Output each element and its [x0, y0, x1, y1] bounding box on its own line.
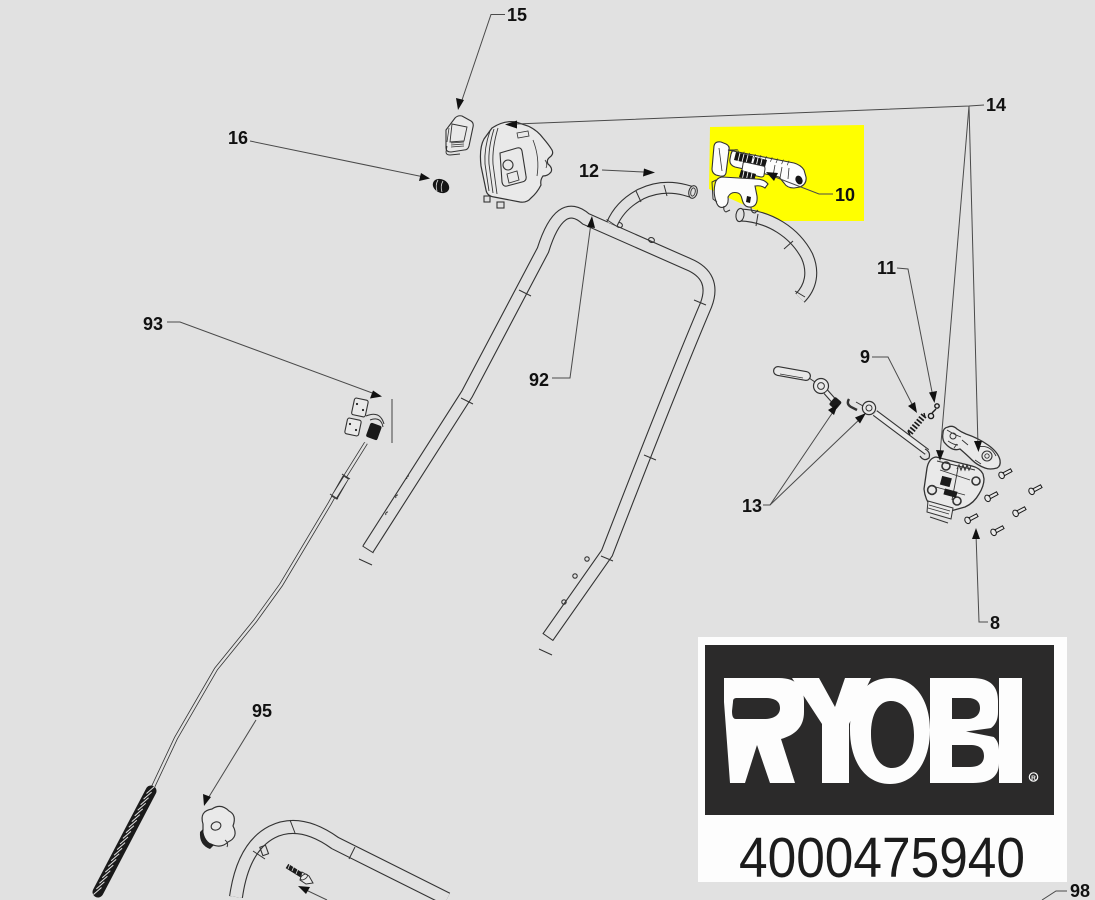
svg-text:98: 98	[1070, 881, 1090, 900]
svg-text:12: 12	[579, 161, 599, 181]
svg-text:16: 16	[228, 128, 248, 148]
svg-text:9: 9	[860, 347, 870, 367]
svg-text:R: R	[1031, 775, 1036, 782]
svg-text:14: 14	[986, 95, 1006, 115]
svg-text:15: 15	[507, 5, 527, 25]
svg-text:4000475940: 4000475940	[739, 826, 1025, 890]
svg-text:11: 11	[877, 258, 896, 278]
svg-text:92: 92	[529, 370, 549, 390]
svg-text:95: 95	[252, 701, 272, 721]
svg-text:10: 10	[835, 185, 855, 205]
svg-text:93: 93	[143, 314, 163, 334]
svg-text:13: 13	[742, 496, 762, 516]
svg-text:8: 8	[990, 613, 1000, 633]
